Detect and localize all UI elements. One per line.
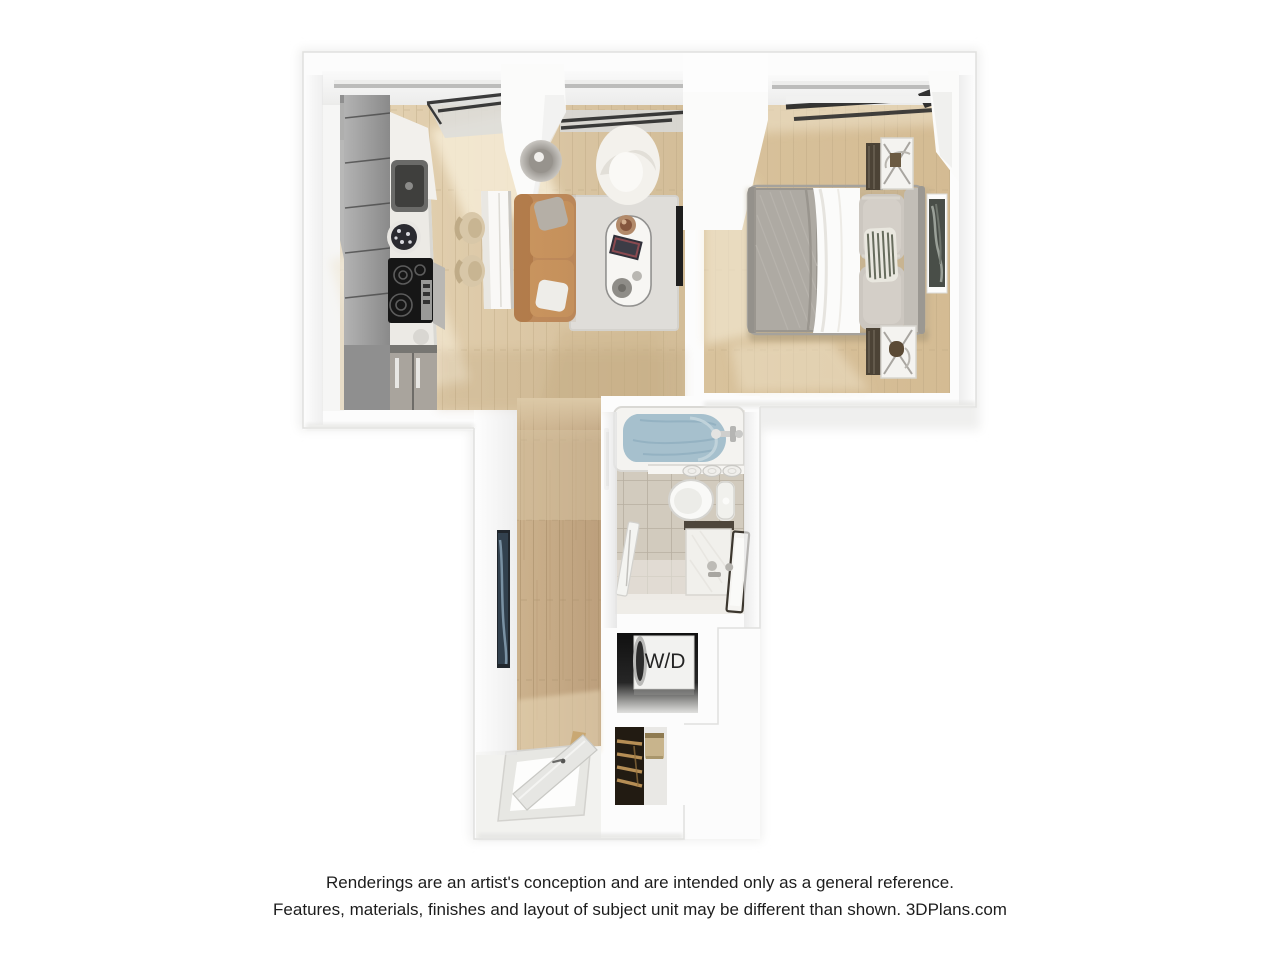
svg-text:W/D: W/D xyxy=(645,650,686,673)
